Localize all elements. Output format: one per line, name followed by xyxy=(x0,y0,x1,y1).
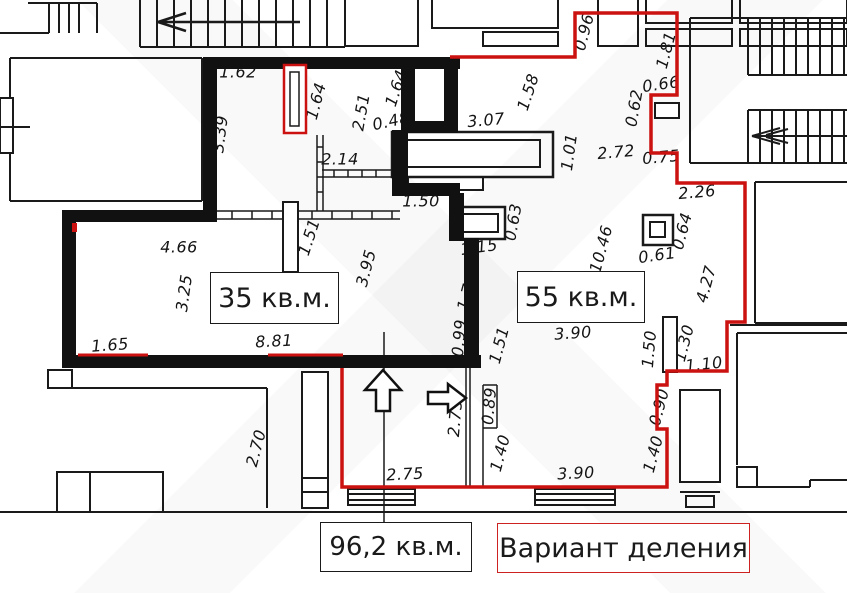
adjacent-room-left xyxy=(0,58,202,201)
terrace-bottom-left xyxy=(48,370,267,512)
windows-bottom xyxy=(348,489,615,505)
adjacent-rooms-right xyxy=(730,182,847,487)
door-block xyxy=(655,103,679,118)
column xyxy=(737,467,757,487)
entry-arrow-up xyxy=(365,370,401,411)
vent-block xyxy=(392,132,553,190)
unit-b-area-label: 55 кв.м. xyxy=(525,282,638,313)
variant-title-label: Вариант деления xyxy=(499,533,748,564)
stair-direction-arrow xyxy=(158,13,300,31)
total-area-box: 96,2 кв.м. xyxy=(320,522,472,572)
wall-pier xyxy=(663,317,677,372)
variant-title-box: Вариант деления xyxy=(497,523,750,573)
floor-plan-canvas: 1.623.391.642.511.640.482.141.503.071.58… xyxy=(0,0,847,593)
unit-b-area-box: 55 кв.м. xyxy=(517,271,645,323)
unit-a-area-box: 35 кв.м. xyxy=(210,272,339,324)
total-area-label: 96,2 кв.м. xyxy=(329,532,462,562)
window xyxy=(0,98,13,153)
red-corner-mark xyxy=(72,223,77,232)
entry-arrow-right xyxy=(428,384,466,412)
column-55 xyxy=(643,215,673,245)
pilaster xyxy=(283,202,298,272)
red-partition-pier xyxy=(284,65,306,133)
stairs-top-right xyxy=(690,18,847,163)
unit-a-area-label: 35 кв.м. xyxy=(218,283,331,314)
stairs-stub-top-left xyxy=(0,3,97,33)
context-lines xyxy=(0,0,847,522)
floor-plan-drawing xyxy=(0,0,847,593)
stairs-top-left xyxy=(140,0,345,47)
